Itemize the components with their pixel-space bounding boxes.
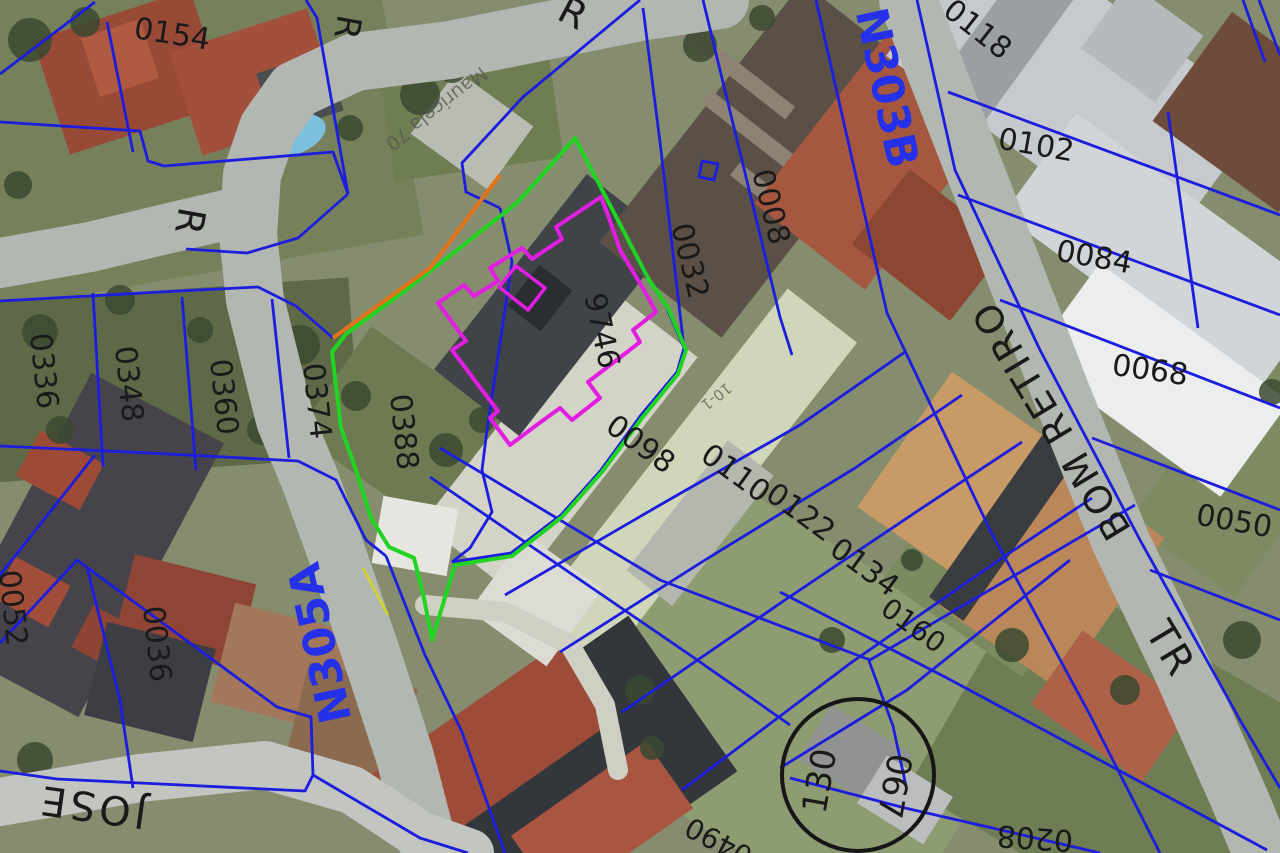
- tree: [749, 5, 775, 31]
- tree: [1223, 621, 1261, 659]
- tree: [341, 381, 371, 411]
- tree: [901, 549, 923, 571]
- tree: [4, 171, 32, 199]
- map-canvas[interactable]: 0154011801020084006800500336034803600374…: [0, 0, 1280, 853]
- tree: [22, 314, 58, 350]
- tree: [995, 628, 1029, 662]
- tree: [1110, 675, 1140, 705]
- tree: [70, 7, 100, 37]
- tree: [46, 416, 74, 444]
- tree: [105, 285, 135, 315]
- satellite-cadastral-layer: [0, 0, 1280, 853]
- tree: [337, 115, 363, 141]
- tree: [640, 736, 664, 760]
- tree: [187, 317, 213, 343]
